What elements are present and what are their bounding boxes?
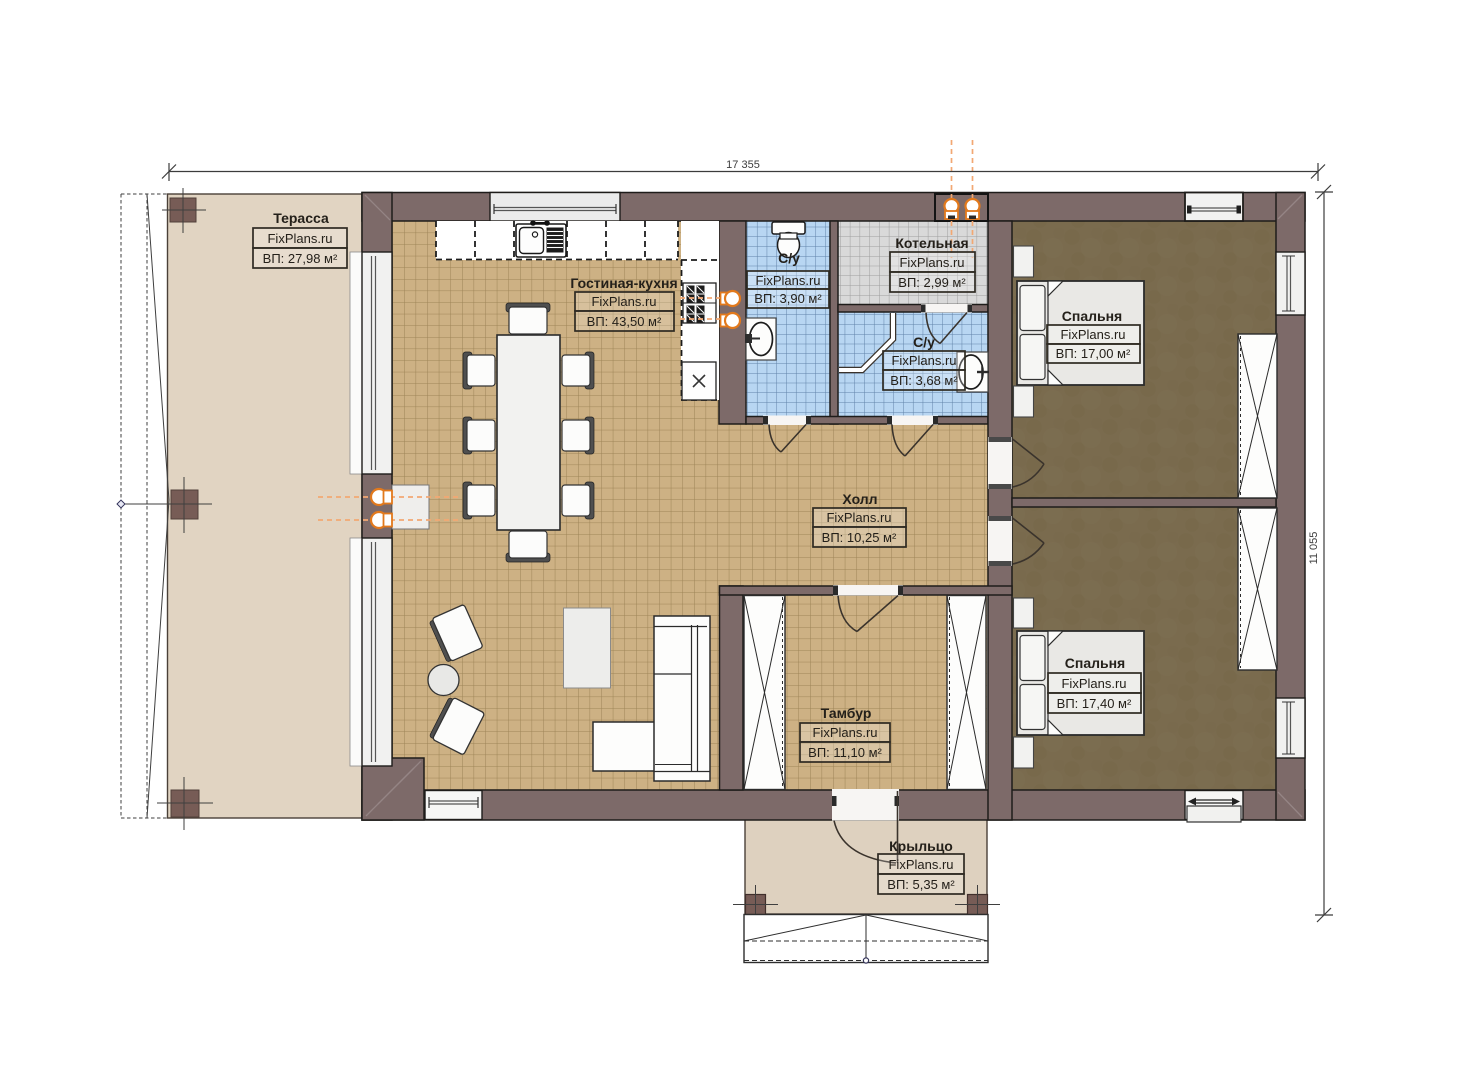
svg-text:FixPlans.ru: FixPlans.ru	[591, 294, 656, 309]
svg-text:ВП: 3,68 м²: ВП: 3,68 м²	[890, 373, 958, 388]
svg-text:ВП: 17,40 м²: ВП: 17,40 м²	[1057, 696, 1132, 711]
svg-text:ВП: 3,90 м²: ВП: 3,90 м²	[754, 291, 822, 306]
svg-text:Спальня: Спальня	[1062, 308, 1122, 324]
svg-text:Крыльцо: Крыльцо	[889, 838, 953, 854]
svg-text:FixPlans.ru: FixPlans.ru	[899, 255, 964, 270]
svg-text:FixPlans.ru: FixPlans.ru	[812, 725, 877, 740]
svg-text:17 355: 17 355	[726, 159, 760, 171]
svg-text:11 055: 11 055	[1308, 532, 1320, 565]
svg-text:FixPlans.ru: FixPlans.ru	[267, 231, 332, 246]
svg-text:ВП: 10,25 м²: ВП: 10,25 м²	[822, 530, 897, 545]
svg-text:ВП: 27,98 м²: ВП: 27,98 м²	[263, 251, 338, 266]
svg-text:Холл: Холл	[842, 491, 877, 507]
svg-text:С/у: С/у	[778, 250, 800, 266]
svg-text:ВП: 11,10 м²: ВП: 11,10 м²	[808, 745, 882, 760]
svg-text:Котельная: Котельная	[895, 235, 968, 251]
svg-text:FixPlans.ru: FixPlans.ru	[755, 273, 820, 288]
svg-text:С/у: С/у	[913, 334, 935, 350]
svg-text:ВП: 43,50 м²: ВП: 43,50 м²	[587, 314, 662, 329]
svg-text:ВП: 17,00 м²: ВП: 17,00 м²	[1056, 346, 1131, 361]
svg-text:FixPlans.ru: FixPlans.ru	[891, 353, 956, 368]
svg-text:Тамбур: Тамбур	[821, 705, 872, 721]
svg-text:FixPlans.ru: FixPlans.ru	[826, 510, 891, 525]
svg-text:FixPlans.ru: FixPlans.ru	[1060, 327, 1125, 342]
svg-text:Спальня: Спальня	[1065, 655, 1125, 671]
svg-text:ВП: 2,99 м²: ВП: 2,99 м²	[898, 275, 966, 290]
svg-text:FixPlans.ru: FixPlans.ru	[1061, 676, 1126, 691]
svg-text:ВП: 5,35 м²: ВП: 5,35 м²	[887, 877, 955, 892]
svg-text:FixPlans.ru: FixPlans.ru	[888, 857, 953, 872]
svg-text:Гостиная-кухня: Гостиная-кухня	[570, 275, 677, 291]
svg-text:Терасса: Терасса	[273, 210, 329, 226]
